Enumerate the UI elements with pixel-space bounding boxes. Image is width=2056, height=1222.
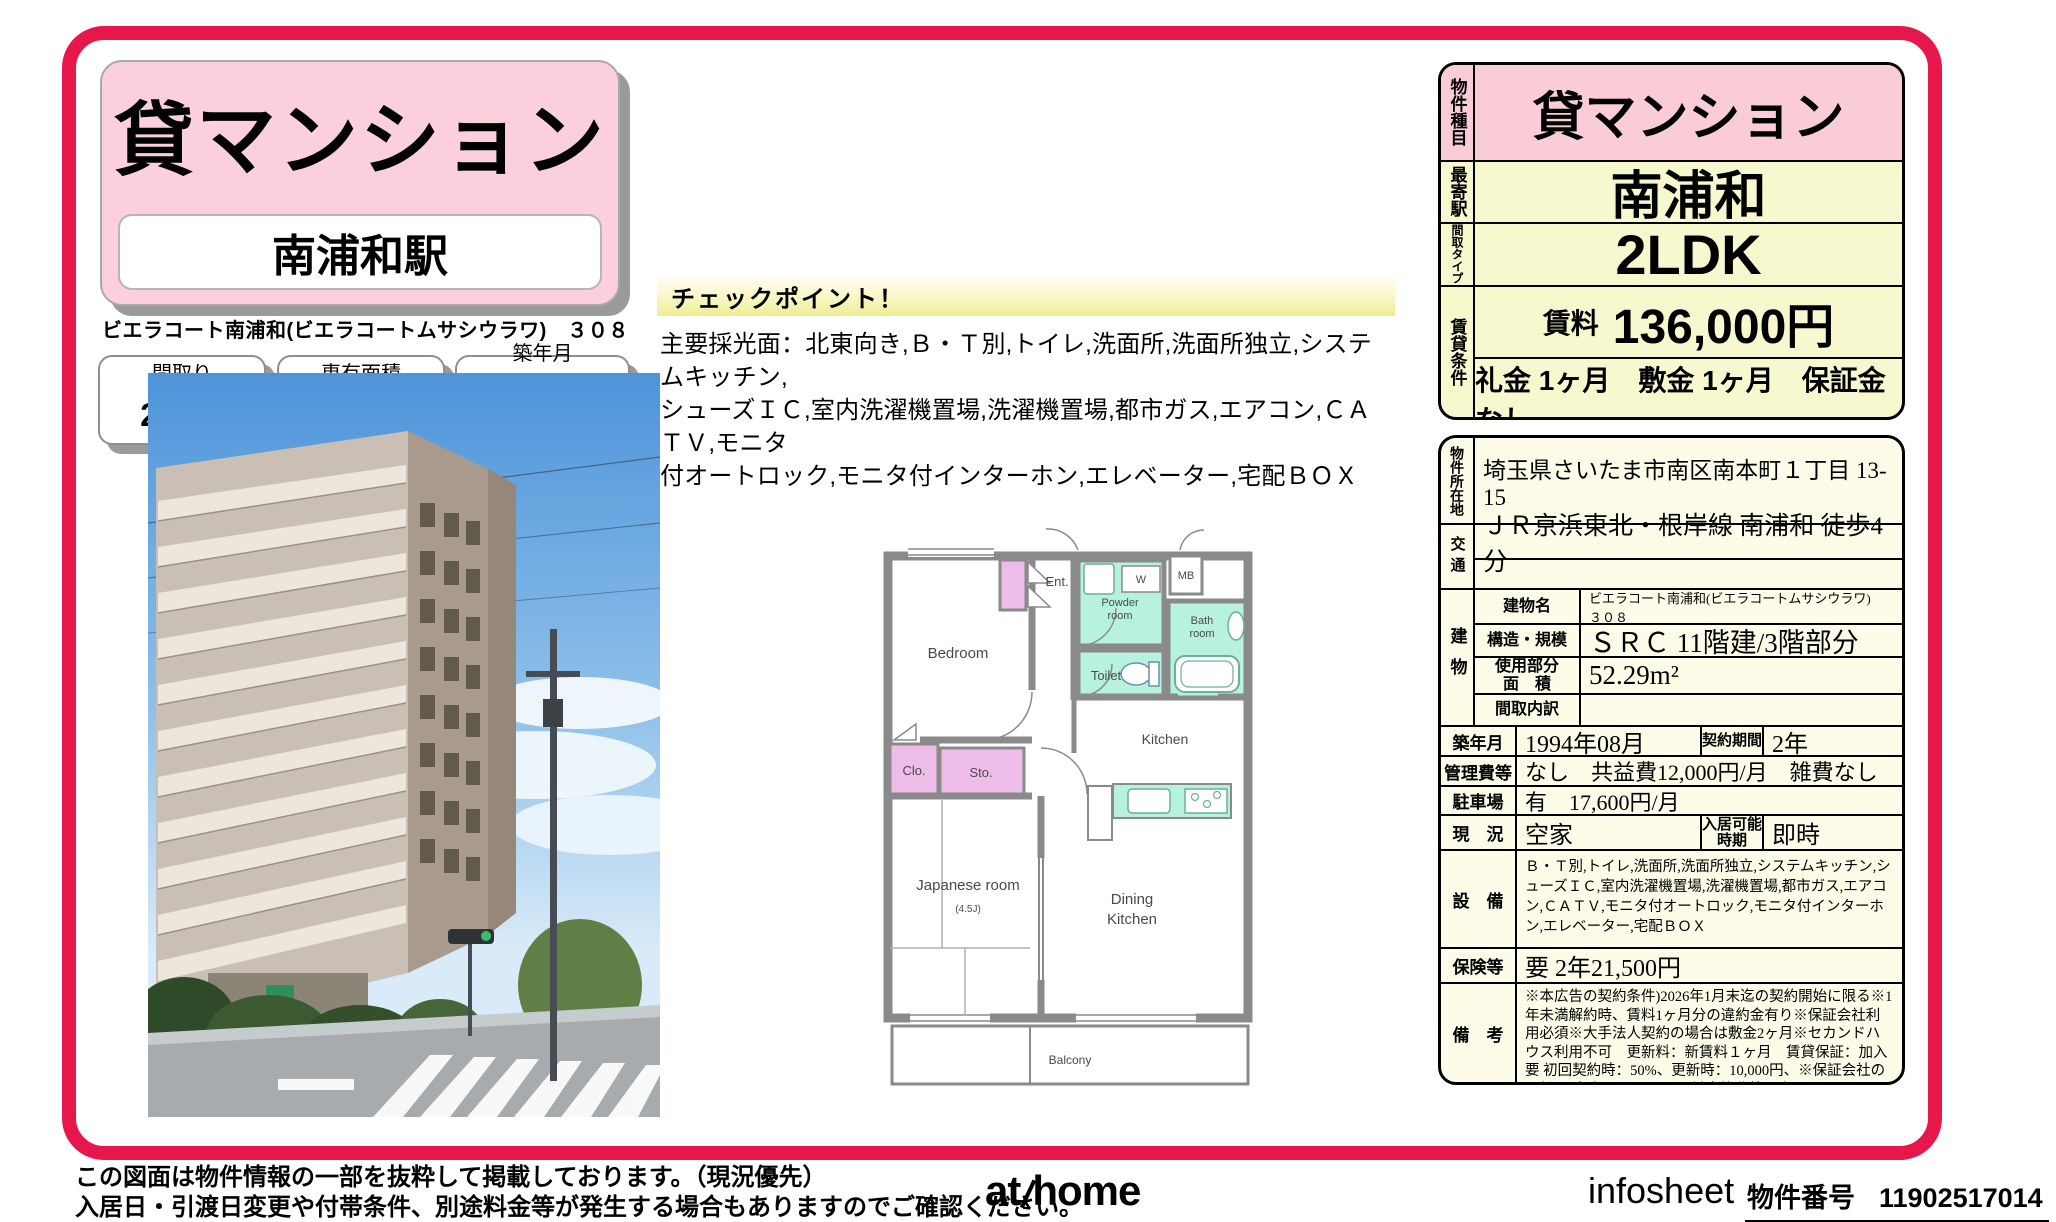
remarks-value: ※本広告の契約条件)2026年1月末迄の契約開始に限る※1年未満解約時、賃料1ヶ… xyxy=(1517,984,1902,1082)
balcony-label: Balcony xyxy=(1049,1053,1092,1067)
built-box-label: 築年月 xyxy=(513,337,573,366)
property-number-label: 物件番号 xyxy=(1747,1183,1855,1213)
property-number: 物件番号11902517014 xyxy=(1745,1176,2049,1222)
equipment-label: 設 備 xyxy=(1441,851,1517,947)
floorplan-art: Bedroom Ent. W MB Powder room Bath room … xyxy=(880,528,1260,1093)
powder-room-label-1: Powder xyxy=(1101,597,1139,609)
insurance-value: 要 2年21,500円 xyxy=(1517,949,1902,982)
terms-label: 賃貸条件 xyxy=(1449,318,1466,386)
dining-kitchen-label-1: Dining xyxy=(1111,891,1154,908)
management-fee-value: なし 共益費12,000円/月 雑費なし xyxy=(1517,757,1902,785)
closet-label: Clo. xyxy=(902,763,925,778)
entry-closet xyxy=(1000,560,1026,610)
transport-label: 交通 xyxy=(1450,536,1465,578)
dining-kitchen-label-2: Kitchen xyxy=(1107,911,1157,928)
built-date-value: 1994年08月 xyxy=(1517,727,1700,755)
used-area-value: 52.29m² xyxy=(1581,658,1902,693)
parking-value: 有 17,600円/月 xyxy=(1517,787,1902,814)
remarks-label: 備 考 xyxy=(1441,984,1517,1082)
kitchen-label: Kitchen xyxy=(1142,731,1189,747)
layout-type-label: 間取タイプ xyxy=(1451,224,1463,284)
type-value: 貸マンション xyxy=(1475,65,1902,160)
parking-label: 駐車場 xyxy=(1441,787,1517,814)
insurance-label: 保険等 xyxy=(1441,949,1517,982)
building-name-value: ビエラコート南浦和(ビエラコートムサシウラワ) ３０８ xyxy=(1581,590,1902,623)
entrance-label: Ent. xyxy=(1045,574,1068,589)
powder-room-label-2: room xyxy=(1107,610,1132,622)
nearest-station-label: 最寄駅 xyxy=(1449,166,1466,217)
building-label: 建物 xyxy=(1449,627,1466,689)
layout-type-value: 2LDK xyxy=(1475,224,1902,285)
checkpoint-title: チェックポイント！ xyxy=(657,276,1395,316)
bedroom-label: Bedroom xyxy=(928,645,989,662)
checkpoint-body: 主要採光面：北東向き,Ｂ・Ｔ別,トイレ,洗面所,洗面所独立,システムキッチン, … xyxy=(660,328,1376,493)
property-number-value: 11902517014 xyxy=(1879,1183,2043,1213)
movein-label: 入居可能 時期 xyxy=(1700,816,1764,849)
equipment-value: Ｂ・Ｔ別,トイレ,洗面所,洗面所独立,システムキッチン,シューズＩＣ,室内洗濯機… xyxy=(1517,851,1902,947)
layout-detail-value xyxy=(1581,695,1902,725)
movein-value: 即時 xyxy=(1764,816,1902,849)
floorplan: Bedroom Ent. W MB Powder room Bath room … xyxy=(880,528,1260,1093)
deposit-terms: 礼金 1ヶ月 敷金 1ヶ月 保証金 なし xyxy=(1475,359,1902,420)
infosheet-page: 貸マンション 南浦和駅 ビエラコート南浦和(ビエラコートムサシウラワ) ３０８ … xyxy=(0,0,2056,1222)
japanese-room-size: (4.5J) xyxy=(955,904,981,915)
header-box: 貸マンション 南浦和駅 xyxy=(100,60,620,306)
structure-value: ＳＲＣ 11階建/3階部分 xyxy=(1581,625,1902,656)
kitchen-sink xyxy=(1128,789,1170,813)
athome-logo-at: at xyxy=(985,1167,1020,1214)
property-name-line: ビエラコート南浦和(ビエラコートムサシウラワ) ３０８ xyxy=(102,314,662,343)
contract-term-label: 契約期間 xyxy=(1700,727,1764,755)
transport-line2 xyxy=(1475,560,1902,588)
building-photo xyxy=(148,373,660,1117)
infosheet-label: infosheet xyxy=(1588,1170,1734,1212)
location-label: 物件所在地 xyxy=(1450,446,1464,516)
type-label: 物件種目 xyxy=(1449,78,1466,146)
detail-table: 物件所在地 埼玉県さいたま市南区南本町１丁目 13-15 交通 ＪＲ京浜東北・根… xyxy=(1438,435,1905,1085)
nearest-station-value: 南浦和 xyxy=(1475,162,1902,222)
station-box: 南浦和駅 xyxy=(118,214,602,290)
summary-table: 物件種目 貸マンション 最寄駅 南浦和 間取タイプ 2LDK 賃貸条件 賃料 1… xyxy=(1438,62,1905,420)
built-date-label: 築年月 xyxy=(1441,727,1517,755)
athome-logo-home: home xyxy=(1032,1167,1140,1214)
fridge-space xyxy=(1088,786,1112,840)
rent-value: 136,000円 xyxy=(1613,287,1835,357)
washer-label: W xyxy=(1136,574,1147,586)
status-value: 空家 xyxy=(1517,816,1700,849)
layout-detail-label: 間取内訳 xyxy=(1475,695,1581,725)
structure-label: 構造・規模 xyxy=(1475,625,1581,656)
bath-room-label-1: Bath xyxy=(1191,615,1214,627)
japanese-room-label: Japanese room xyxy=(916,877,1019,894)
bath-room-label-2: room xyxy=(1189,628,1214,640)
toilet-fixture xyxy=(1121,663,1151,685)
used-area-label: 使用部分 面 積 xyxy=(1475,658,1581,693)
building-photo-art xyxy=(148,373,660,1117)
meter-box-label: MB xyxy=(1178,570,1195,582)
footer-disclaimer: この図面は物件情報の一部を抜粋して掲載しております。（現況優先） 入居日・引渡日… xyxy=(75,1163,1083,1222)
athome-logo: athome xyxy=(985,1167,1140,1215)
contract-term-value: 2年 xyxy=(1764,727,1902,755)
management-fee-label: 管理費等 xyxy=(1441,757,1517,785)
storage-label: Sto. xyxy=(969,765,992,780)
transport-line1: ＪＲ京浜東北・根岸線 南浦和 徒歩4分 xyxy=(1475,525,1902,558)
status-label: 現 況 xyxy=(1441,816,1517,849)
building-name-label: 建物名 xyxy=(1475,590,1581,623)
toilet-label: Toilet xyxy=(1091,668,1122,683)
category-title: 貸マンション xyxy=(102,76,618,192)
rent-label: 賃料 xyxy=(1543,302,1599,342)
